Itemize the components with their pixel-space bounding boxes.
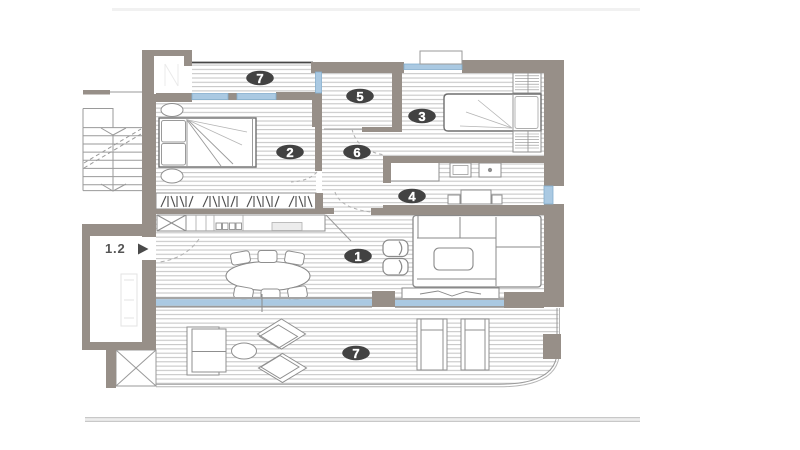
svg-text:3: 3: [418, 109, 425, 124]
svg-text:7: 7: [352, 346, 359, 361]
svg-text:5: 5: [356, 89, 363, 104]
svg-text:1: 1: [354, 249, 361, 264]
svg-text:7: 7: [256, 71, 263, 86]
svg-text:1.2: 1.2: [105, 241, 125, 256]
svg-text:4: 4: [408, 189, 416, 204]
svg-text:6: 6: [353, 145, 360, 160]
svg-text:2: 2: [286, 145, 293, 160]
